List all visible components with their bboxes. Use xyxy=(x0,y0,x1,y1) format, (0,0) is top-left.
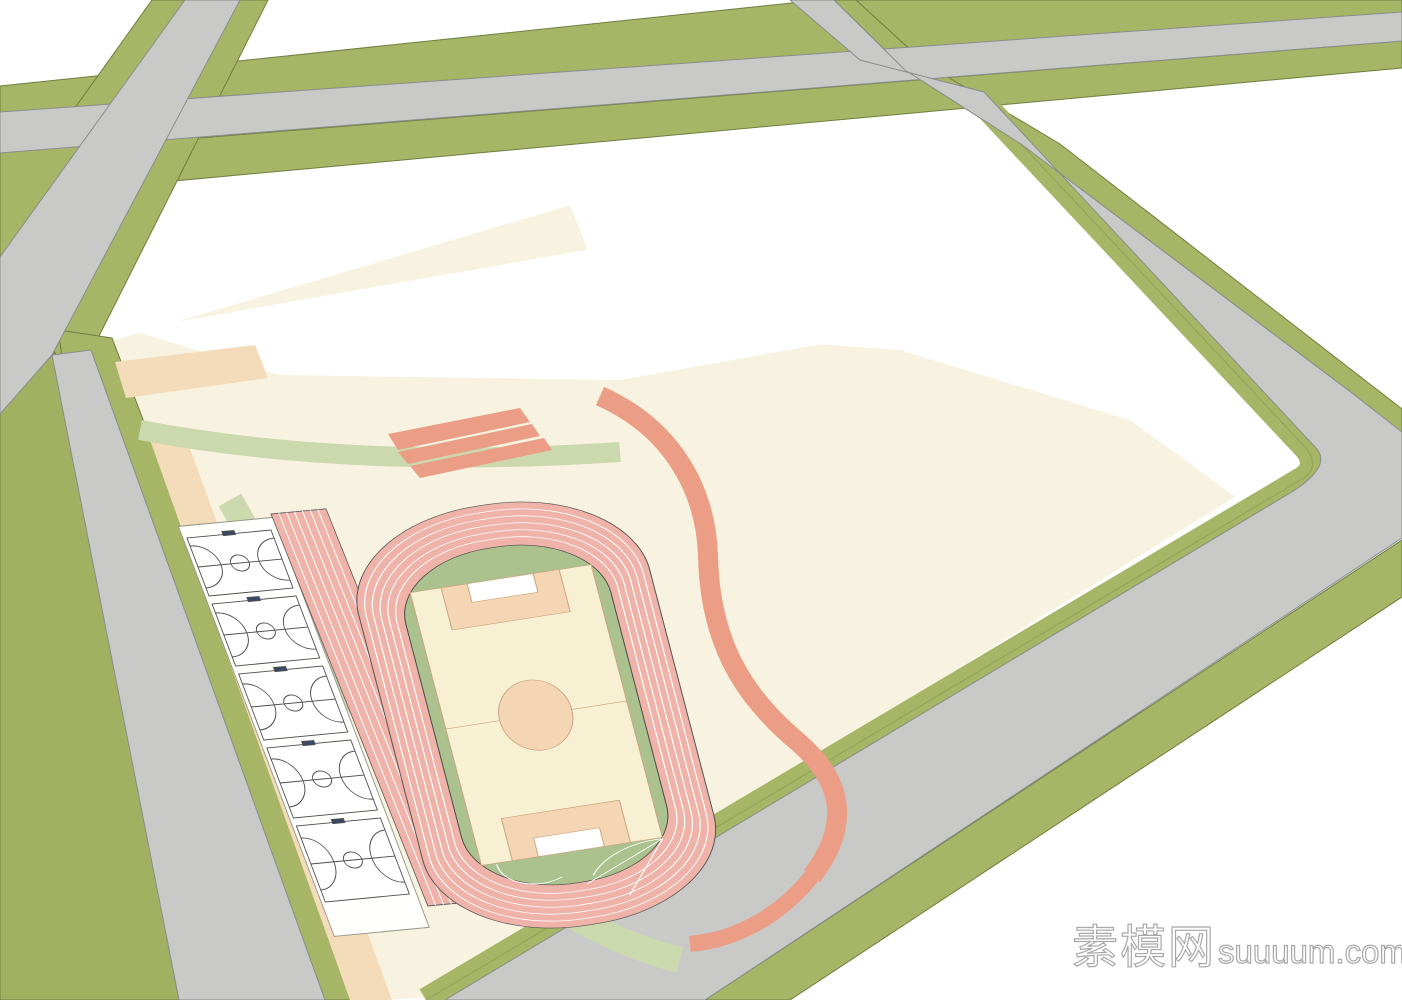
svg-text:素模网: 素模网 xyxy=(1072,921,1216,973)
svg-text:suuuum.com: suuuum.com xyxy=(1218,933,1402,970)
